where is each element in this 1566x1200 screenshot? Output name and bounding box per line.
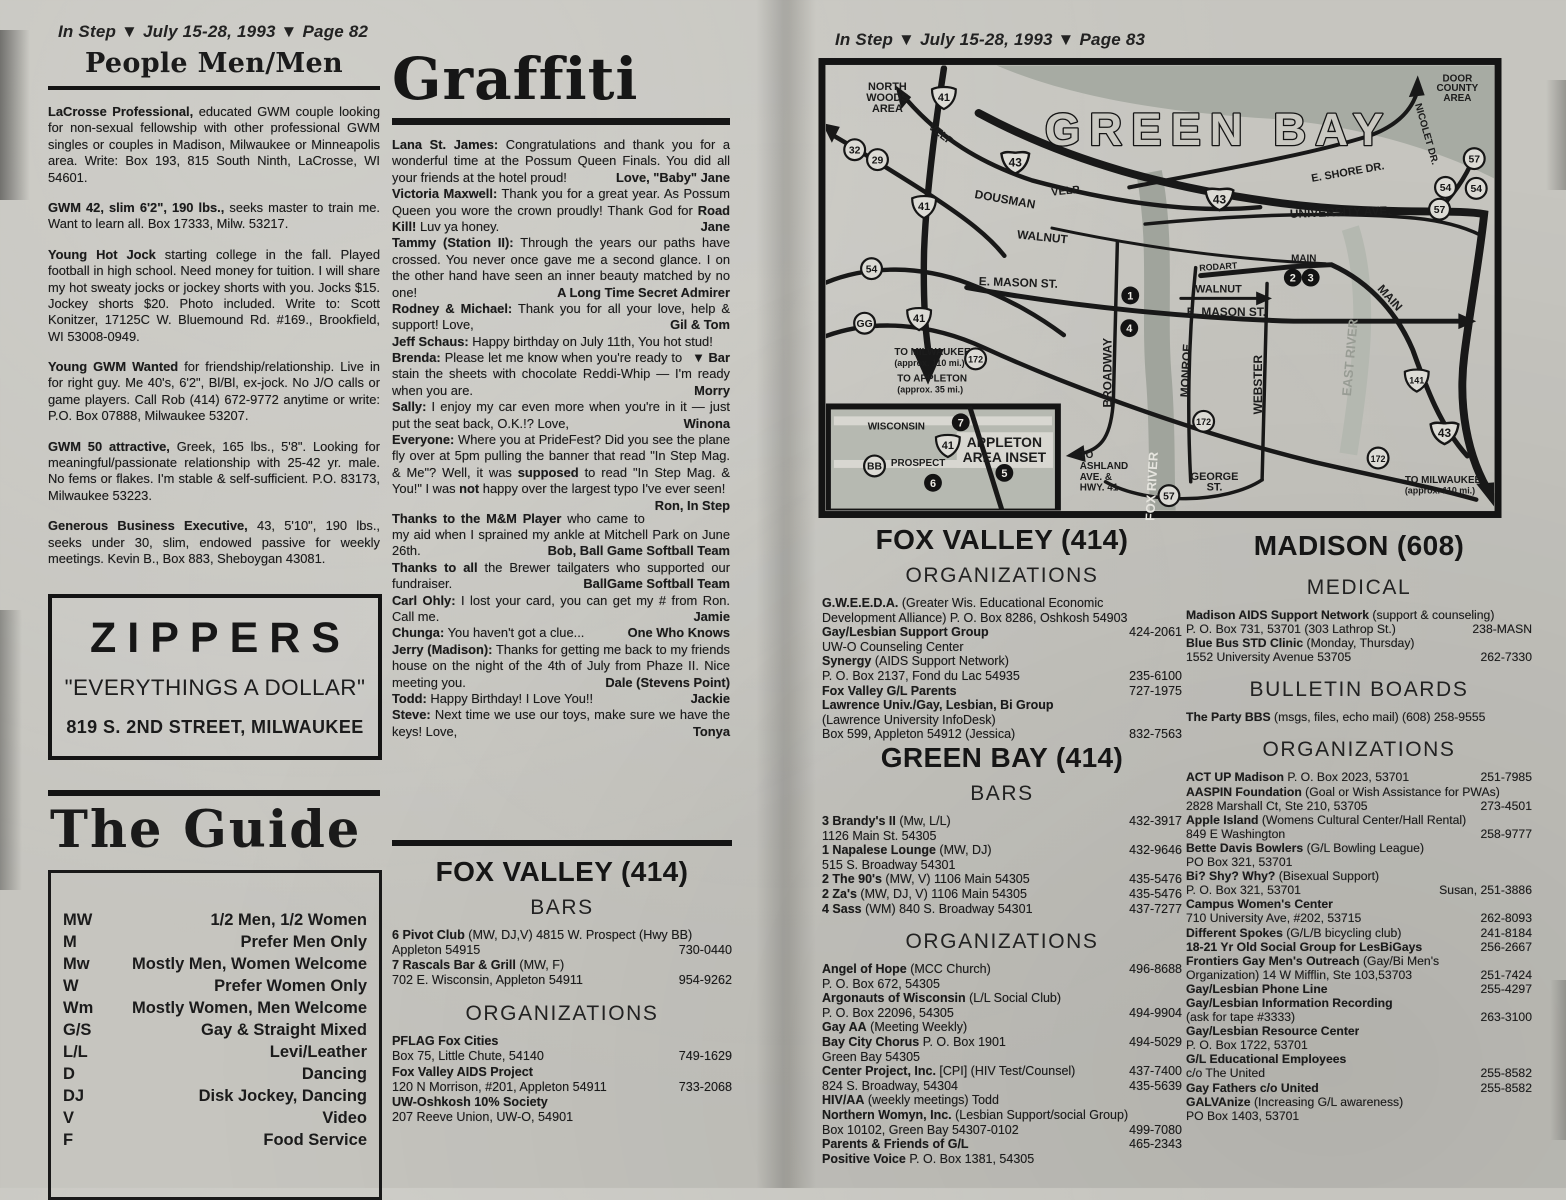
listing-text: 710 University Ave, #202, 53715 bbox=[1186, 911, 1361, 925]
graffiti-entry: Sally: I enjoy my car even more when you… bbox=[392, 399, 730, 432]
marker-number: 2 bbox=[1290, 273, 1296, 285]
listing-line: Fox Valley AIDS Project bbox=[392, 1065, 732, 1080]
graffiti-signature: Dale (Stevens Point) bbox=[595, 675, 730, 691]
shield-number: 41 bbox=[938, 92, 950, 104]
green-bay-bars-list: 3 Brandy's II (Mw, L/L)432-39171126 Main… bbox=[822, 814, 1182, 916]
listing-text: PO Box 1403, 53701 bbox=[1186, 1109, 1299, 1123]
listing-name: AASPIN Foundation bbox=[1186, 785, 1302, 799]
graffiti-signature: ▼ Bar bbox=[682, 350, 730, 366]
road-walnut-upper bbox=[1052, 228, 1326, 264]
listing-line: 18-21 Yr Old Social Group for LesBiGays2… bbox=[1186, 940, 1532, 954]
organizations-subheading: ORGANIZATIONS bbox=[1186, 738, 1532, 762]
map-label: MONROE bbox=[1177, 343, 1194, 397]
marker-number: 4 bbox=[1126, 323, 1132, 335]
listing-name: Madison AIDS Support Network bbox=[1186, 608, 1369, 622]
listing-phone: 733-2068 bbox=[607, 1080, 732, 1095]
listing-text: Bi? Shy? Why? (Bisexual Support) bbox=[1186, 869, 1379, 883]
legend-row: WPrefer Women Only bbox=[63, 975, 367, 997]
listing-name: Campus Women's Center bbox=[1186, 897, 1333, 911]
listing-text: Bette Davis Bowlers (G/L Bowling League) bbox=[1186, 841, 1424, 855]
bar-location-marker: 1 bbox=[1121, 287, 1139, 305]
route-number: 54 bbox=[1470, 184, 1482, 195]
shield-number: 41 bbox=[918, 201, 930, 213]
zippers-ad-tagline: "EVERYTHINGS A DOLLAR" bbox=[56, 675, 374, 701]
graffiti-bold-text: Sally: bbox=[392, 399, 426, 414]
listing-text: Northern Womyn, Inc. (Lesbian Support/so… bbox=[822, 1108, 1128, 1123]
legend-description: Gay & Straight Mixed bbox=[127, 1019, 367, 1041]
listing-text: 515 S. Broadway 54301 bbox=[822, 858, 955, 873]
listing-text: 824 S. Broadway, 54304 bbox=[822, 1079, 958, 1094]
legend-description: Mostly Men, Women Welcome bbox=[127, 953, 367, 975]
legend-row: MW1/2 Men, 1/2 Women bbox=[63, 909, 367, 931]
listing-line: HIV/AA (weekly meetings) Todd bbox=[822, 1093, 1182, 1108]
legend-code: DJ bbox=[63, 1085, 127, 1107]
listing-text: Gay AA (Meeting Weekly) bbox=[822, 1020, 967, 1035]
listing-line: 2828 Marshall Ct, Ste 210, 53705273-4501 bbox=[1186, 799, 1532, 813]
listing-line: 1552 University Avenue 53705262-7330 bbox=[1186, 650, 1532, 664]
listing-name: G/L Educational Employees bbox=[1186, 1052, 1346, 1066]
listing-name: Synergy bbox=[822, 654, 871, 668]
listing-line: Appleton 54915730-0440 bbox=[392, 943, 732, 958]
route-number: GG bbox=[857, 319, 873, 330]
graffiti-signature: Jackie bbox=[681, 691, 730, 707]
divider-rule bbox=[392, 840, 732, 846]
legend-code: Wm bbox=[63, 997, 127, 1019]
graffiti-entry: Victoria Maxwell: Thank you for a great … bbox=[392, 186, 730, 235]
listing-line: (Lawrence University InfoDesk) bbox=[822, 713, 1182, 728]
legend-description: Levi/Leather bbox=[127, 1041, 367, 1063]
listing-text: 1126 Main St. 54305 bbox=[822, 829, 936, 844]
listing-line: 7 Rascals Bar & Grill (MW, F) bbox=[392, 958, 732, 973]
listing-text: Synergy (AIDS Support Network) bbox=[822, 654, 1009, 669]
listing-line: Different Spokes (G/L/B bicycling club)2… bbox=[1186, 926, 1532, 940]
map-label: VELP bbox=[1051, 184, 1081, 199]
scan-smudge bbox=[1550, 980, 1566, 1140]
listing-phone: 435-5476 bbox=[1027, 887, 1182, 902]
listing-line: Gay AA (Meeting Weekly) bbox=[822, 1020, 1182, 1035]
listing-line: Gay/Lesbian Information Recording bbox=[1186, 996, 1532, 1010]
listing-text: 2828 Marshall Ct, Ste 210, 53705 bbox=[1186, 799, 1368, 813]
map-title: GREEN BAY bbox=[1045, 104, 1392, 155]
listing-line: P. O. Box 2137, Fond du Lac 54935235-610… bbox=[822, 669, 1182, 684]
legend-code: Mw bbox=[63, 953, 127, 975]
listing-text: The Party BBS (msgs, files, echo mail) (… bbox=[1186, 710, 1485, 724]
graffiti-bold-text: Thanks to the M&M Player bbox=[392, 511, 561, 526]
listing-phone: 496-8688 bbox=[991, 962, 1182, 977]
listing-text: P. O. Box 2137, Fond du Lac 54935 bbox=[822, 669, 1020, 684]
listing-line: (ask for tape #3333)263-3100 bbox=[1186, 1010, 1532, 1024]
listing-phone: 263-3100 bbox=[1295, 1010, 1532, 1024]
legend-description: 1/2 Men, 1/2 Women bbox=[127, 909, 367, 931]
map-label: TO MILWAUKEE bbox=[1405, 475, 1482, 486]
classified-ad: Young GWM Wanted for friendship/relation… bbox=[48, 359, 380, 425]
fox-valley-guide-left: FOX VALLEY (414) BARS 6 Pivot Club (MW, … bbox=[392, 840, 732, 1125]
listing-name: Different Spokes bbox=[1186, 926, 1283, 940]
graffiti-entry: Steve: Next time we use our toys, make s… bbox=[392, 707, 730, 740]
shield-number: 43 bbox=[1213, 192, 1227, 206]
map-label: WISCONSIN bbox=[868, 421, 925, 432]
listing-line: Box 75, Little Chute, 54140749-1629 bbox=[392, 1049, 732, 1064]
listing-phone: 256-2667 bbox=[1422, 940, 1532, 954]
route-number: 32 bbox=[849, 145, 861, 156]
listing-phone: 435-5476 bbox=[1030, 872, 1182, 887]
listing-text: Fox Valley AIDS Project bbox=[392, 1065, 533, 1080]
listing-line: Bay City Chorus P. O. Box 1901494-5029 bbox=[822, 1035, 1182, 1050]
listing-text: Positive Voice P. O. Box 1381, 54305 bbox=[822, 1152, 1034, 1167]
madison-medical-list: Madison AIDS Support Network (support & … bbox=[1186, 608, 1532, 664]
listing-name: Fox Valley G/L Parents bbox=[822, 684, 957, 698]
listing-line: PFLAG Fox Cities bbox=[392, 1034, 732, 1049]
listing-line: GALVAnize (Increasing G/L awareness) bbox=[1186, 1095, 1532, 1109]
listing-text: 6 Pivot Club (MW, DJ,V) 4815 W. Prospect… bbox=[392, 928, 692, 943]
graffiti-signature: Jamie bbox=[683, 609, 730, 625]
listing-name: Gay/Lesbian Information Recording bbox=[1186, 996, 1393, 1010]
listing-name: Positive Voice bbox=[822, 1152, 906, 1166]
classified-ad: GWM 50 attractive, Greek, 165 lbs., 5'8"… bbox=[48, 439, 380, 505]
route-number: 172 bbox=[968, 355, 983, 365]
listing-line: G.W.E.E.D.A. (Greater Wis. Educational E… bbox=[822, 596, 1182, 611]
map-label: AREA bbox=[1443, 93, 1471, 104]
listing-name: Lawrence Univ./Gay, Lesbian, Bi Group bbox=[822, 698, 1054, 712]
listing-line: Synergy (AIDS Support Network) bbox=[822, 654, 1182, 669]
county-route-circle: 32 bbox=[844, 139, 865, 160]
listing-line: 849 E Washington258-9777 bbox=[1186, 827, 1532, 841]
listing-text: 18-21 Yr Old Social Group for LesBiGays bbox=[1186, 940, 1422, 954]
bar-location-marker: 7 bbox=[952, 413, 970, 431]
route-number: BB bbox=[867, 462, 883, 473]
listing-phone: 238-MASN bbox=[1396, 622, 1532, 636]
bar-location-marker: 6 bbox=[924, 474, 942, 492]
graffiti-entry: Everyone: Where you at PrideFest? Did yo… bbox=[392, 432, 730, 498]
classified-lead: LaCrosse Professional, bbox=[48, 104, 193, 119]
listing-line: Bi? Shy? Why? (Bisexual Support) bbox=[1186, 869, 1532, 883]
listing-phone: 255-8582 bbox=[1265, 1066, 1532, 1080]
listing-line: The Party BBS (msgs, files, echo mail) (… bbox=[1186, 710, 1532, 724]
listing-name: Gay AA bbox=[822, 1020, 867, 1034]
listing-text: (ask for tape #3333) bbox=[1186, 1010, 1295, 1024]
listing-text: Angel of Hope (MCC Church) bbox=[822, 962, 991, 977]
listing-text: 4 Sass (WM) 840 S. Broadway 54301 bbox=[822, 902, 1033, 917]
listing-line: P. O. Box 731, 53701 (303 Lathrop St.)23… bbox=[1186, 622, 1532, 636]
listing-name: 1 Napalese Lounge bbox=[822, 843, 936, 857]
listing-name: 6 Pivot Club bbox=[392, 928, 465, 942]
listing-name: Angel of Hope bbox=[822, 962, 907, 976]
graffiti-bold-text: supposed bbox=[518, 465, 579, 480]
listing-phone: 432-9646 bbox=[991, 843, 1182, 858]
graffiti-bold-text: Tammy (Station II): bbox=[392, 235, 514, 250]
listing-text: UW-O Counseling Center bbox=[822, 640, 964, 655]
graffiti-entry: Lana St. James: Congratulations and than… bbox=[392, 137, 730, 186]
zippers-ad-name: ZIPPERS bbox=[56, 614, 374, 663]
legend-code: D bbox=[63, 1063, 127, 1085]
listing-name: Argonauts of Wisconsin bbox=[822, 991, 966, 1005]
graffiti-bold-text: Thanks to all bbox=[392, 560, 478, 575]
listing-text: Green Bay 54305 bbox=[822, 1050, 920, 1065]
listing-name: GALVAnize bbox=[1186, 1095, 1251, 1109]
legend-description: Food Service bbox=[127, 1129, 367, 1151]
listing-name: PFLAG Fox Cities bbox=[392, 1034, 498, 1048]
legend-code: L/L bbox=[63, 1041, 127, 1063]
bulletin-boards-subheading: BULLETIN BOARDS bbox=[1186, 678, 1532, 702]
map-label: APPLETON bbox=[967, 434, 1042, 450]
classified-lead: GWM 50 attractive, bbox=[48, 439, 170, 454]
route-number: 57 bbox=[1163, 491, 1175, 502]
listing-name: 7 Rascals Bar & Grill bbox=[392, 958, 516, 972]
listing-phone: 730-0440 bbox=[480, 943, 732, 958]
listing-phone: 241-8184 bbox=[1401, 926, 1532, 940]
marker-number: 1 bbox=[1127, 290, 1133, 302]
classified-ad: LaCrosse Professional, educated GWM coup… bbox=[48, 104, 380, 186]
bar-location-marker: 3 bbox=[1302, 269, 1320, 287]
legend-code: F bbox=[63, 1129, 127, 1151]
fox-valley-heading: FOX VALLEY (414) bbox=[822, 524, 1182, 556]
graffiti-signature: Morry bbox=[684, 383, 730, 399]
listing-name: Apple Island bbox=[1186, 813, 1258, 827]
fox-valley-heading: FOX VALLEY (414) bbox=[392, 856, 732, 888]
listing-line: Madison AIDS Support Network (support & … bbox=[1186, 608, 1532, 622]
listing-name: Blue Bus STD Clinic bbox=[1186, 636, 1303, 650]
classified-ads-list: LaCrosse Professional, educated GWM coup… bbox=[48, 104, 380, 598]
inset-road-wisconsin bbox=[834, 416, 1052, 425]
listing-name: Gay Fathers c/o United bbox=[1186, 1081, 1319, 1095]
listing-line: 3 Brandy's II (Mw, L/L)432-3917 bbox=[822, 814, 1182, 829]
listing-text: P. O. Box 321, 53701 bbox=[1186, 883, 1301, 897]
listing-line: 2 The 90's (MW, V) 1106 Main 54305435-54… bbox=[822, 872, 1182, 887]
scan-smudge bbox=[0, 30, 30, 200]
legend-row: DDancing bbox=[63, 1063, 367, 1085]
listing-line: P. O. Box 321, 53701Susan, 251-3886 bbox=[1186, 883, 1532, 897]
marker-number: 5 bbox=[1001, 468, 1007, 480]
listing-text: (Lawrence University InfoDesk) bbox=[822, 713, 996, 728]
the-guide-title: The Guide bbox=[50, 800, 361, 860]
legend-row: G/SGay & Straight Mixed bbox=[63, 1019, 367, 1041]
left-page-column-2: Graffiti Lana St. James: Congratulations… bbox=[392, 50, 730, 740]
arrow-walnut bbox=[1256, 291, 1272, 305]
listing-line: AASPIN Foundation (Goal or Wish Assistan… bbox=[1186, 785, 1532, 799]
organizations-subheading: ORGANIZATIONS bbox=[822, 564, 1182, 588]
divider-rule bbox=[392, 118, 730, 125]
graffiti-bold-text: Steve: bbox=[392, 707, 431, 722]
map-label: TO MILWAUKEE bbox=[894, 347, 971, 358]
listing-text: Box 75, Little Chute, 54140 bbox=[392, 1049, 544, 1064]
madison-heading: MADISON (608) bbox=[1186, 530, 1532, 562]
listing-line: Bette Davis Bowlers (G/L Bowling League) bbox=[1186, 841, 1532, 855]
graffiti-entries: Lana St. James: Congratulations and than… bbox=[392, 137, 730, 740]
county-route-circle: 172 bbox=[1193, 411, 1214, 432]
shield-number: 43 bbox=[1438, 426, 1452, 440]
listing-text: c/o The United bbox=[1186, 1066, 1265, 1080]
listing-phone: 255-4297 bbox=[1328, 982, 1532, 996]
listing-text: 3 Brandy's II (Mw, L/L) bbox=[822, 814, 951, 829]
listing-line: 515 S. Broadway 54301 bbox=[822, 858, 1182, 873]
scan-smudge bbox=[1546, 80, 1566, 190]
fox-valley-orgs-list: G.W.E.E.D.A. (Greater Wis. Educational E… bbox=[822, 596, 1182, 742]
marker-number: 7 bbox=[958, 417, 964, 429]
listing-text: Gay/Lesbian Phone Line bbox=[1186, 982, 1328, 996]
green-bay-map-svg: GREEN BAYNORTHWOODSAREADOORCOUNTYAREAVEL… bbox=[818, 56, 1502, 520]
listing-text: 120 N Morrison, #201, Appleton 54911 bbox=[392, 1080, 607, 1095]
listing-text: Apple Island (Womens Cultural Center/Hal… bbox=[1186, 813, 1466, 827]
zippers-ad-address: 819 S. 2ND STREET, MILWAUKEE bbox=[56, 717, 374, 738]
county-route-circle: 57 bbox=[1464, 148, 1485, 169]
listing-line: Box 599, Appleton 54912 (Jessica)832-756… bbox=[822, 727, 1182, 742]
listing-line: 702 E. Wisconsin, Appleton 54911954-9262 bbox=[392, 973, 732, 988]
listing-line: Campus Women's Center bbox=[1186, 897, 1532, 911]
bar-location-marker: 2 bbox=[1284, 269, 1302, 287]
listing-phone: 727-1975 bbox=[957, 684, 1182, 699]
listing-text: Development Alliance) P. O. Box 8286, Os… bbox=[822, 611, 1128, 626]
map-label: ASHLAND bbox=[1080, 461, 1128, 472]
listing-text: PFLAG Fox Cities bbox=[392, 1034, 498, 1049]
listing-line: PO Box 1403, 53701 bbox=[1186, 1109, 1532, 1123]
green-bay-orgs-list: Angel of Hope (MCC Church)496-8688P. O. … bbox=[822, 962, 1182, 1166]
graffiti-entry: Carl Ohly: I lost your card, you can get… bbox=[392, 593, 730, 626]
county-route-circle: 172 bbox=[965, 348, 986, 369]
graffiti-bold-text: Jerry (Madison): bbox=[392, 642, 492, 657]
bars-subheading: BARS bbox=[392, 896, 732, 920]
listing-name: Northern Womyn, Inc. bbox=[822, 1108, 952, 1122]
listing-name: The Party BBS bbox=[1186, 710, 1271, 724]
listing-text: Box 599, Appleton 54912 (Jessica) bbox=[822, 727, 1015, 742]
marker-number: 6 bbox=[930, 478, 936, 490]
people-men-men-title: People Men/Men bbox=[48, 48, 380, 90]
listing-name: Frontiers Gay Men's Outreach bbox=[1186, 954, 1360, 968]
legend-row: MPrefer Men Only bbox=[63, 931, 367, 953]
listing-line: Frontiers Gay Men's Outreach (Gay/Bi Men… bbox=[1186, 954, 1532, 968]
listing-phone: 465-2343 bbox=[969, 1137, 1182, 1152]
graffiti-bold-text: Lana St. James: bbox=[392, 137, 498, 152]
legend-code: M bbox=[63, 931, 127, 953]
listing-text: UW-Oshkosh 10% Society bbox=[392, 1095, 548, 1110]
graffiti-signature: Bob, Ball Game Softball Team bbox=[538, 543, 730, 559]
graffiti-signature: One Who Knows bbox=[618, 625, 730, 641]
listing-text: 2 Za's (MW, DJ, V) 1106 Main 54305 bbox=[822, 887, 1027, 902]
county-route-circle: 172 bbox=[1368, 448, 1389, 469]
green-bay-heading: GREEN BAY (414) bbox=[822, 742, 1182, 774]
listing-name: 3 Brandy's II bbox=[822, 814, 896, 828]
listing-text: P. O. Box 672, 54305 bbox=[822, 977, 940, 992]
listing-name: Bay City Chorus bbox=[822, 1035, 919, 1049]
shield-number: 41 bbox=[942, 440, 954, 452]
listing-text: 1552 University Avenue 53705 bbox=[1186, 650, 1351, 664]
listing-phone: 251-7985 bbox=[1409, 770, 1532, 784]
graffiti-entry: Todd: Happy Birthday! I Love You!!Jackie bbox=[392, 691, 730, 707]
graffiti-bold-text: Everyone: bbox=[392, 432, 454, 447]
listing-text: Bay City Chorus P. O. Box 1901 bbox=[822, 1035, 1006, 1050]
listing-line: Organization) 14 W Mifflin, Ste 103,5370… bbox=[1186, 968, 1532, 982]
madison-orgs-list: ACT UP Madison P. O. Box 2023, 53701251-… bbox=[1186, 770, 1532, 1122]
classified-lead: Young GWM Wanted bbox=[48, 359, 178, 374]
legend-row: FFood Service bbox=[63, 1129, 367, 1151]
legend-description: Disk Jockey, Dancing bbox=[127, 1085, 367, 1107]
graffiti-signature: Jane bbox=[691, 219, 730, 235]
map-label: AVE. & bbox=[1080, 472, 1112, 483]
shield-number: 141 bbox=[1409, 376, 1424, 386]
listing-line: G/L Educational Employees bbox=[1186, 1052, 1532, 1066]
listing-line: P. O. Box 1722, 53701 bbox=[1186, 1038, 1532, 1052]
classified-ad: Generous Business Executive, 43, 5'10", … bbox=[48, 518, 380, 567]
listing-phone: 749-1629 bbox=[544, 1049, 732, 1064]
listing-phone: 235-6100 bbox=[1020, 669, 1182, 684]
legend-row: VVideo bbox=[63, 1107, 367, 1129]
listing-line: Blue Bus STD Clinic (Monday, Thursday) bbox=[1186, 636, 1532, 650]
right-page-column-1: FOX VALLEY (414) ORGANIZATIONS G.W.E.E.D… bbox=[822, 524, 1182, 1166]
county-route-circle: BB bbox=[864, 456, 885, 477]
listing-line: Northern Womyn, Inc. (Lesbian Support/so… bbox=[822, 1108, 1182, 1123]
listing-line: 710 University Ave, #202, 53715262-8093 bbox=[1186, 911, 1532, 925]
listing-phone: 494-5029 bbox=[1006, 1035, 1182, 1050]
medical-subheading: MEDICAL bbox=[1186, 576, 1532, 600]
route-number: 172 bbox=[1196, 417, 1211, 427]
listing-text: Parents & Friends of G/L bbox=[822, 1137, 969, 1152]
listing-line: 4 Sass (WM) 840 S. Broadway 54301437-727… bbox=[822, 902, 1182, 917]
listing-line: 2 Za's (MW, DJ, V) 1106 Main 54305435-54… bbox=[822, 887, 1182, 902]
classified-ad: Young Hot Jock starting college in the f… bbox=[48, 247, 380, 345]
graffiti-entry: Chunga: You haven't got a clue...One Who… bbox=[392, 625, 730, 641]
listing-text: 702 E. Wisconsin, Appleton 54911 bbox=[392, 973, 583, 988]
listing-name: HIV/AA bbox=[822, 1093, 864, 1107]
county-route-circle: 54 bbox=[861, 258, 882, 279]
listing-text: Gay/Lesbian Information Recording bbox=[1186, 996, 1393, 1010]
listing-line: Lawrence Univ./Gay, Lesbian, Bi Group bbox=[822, 698, 1182, 713]
listing-text: 849 E Washington bbox=[1186, 827, 1285, 841]
legend-row: L/LLevi/Leather bbox=[63, 1041, 367, 1063]
map-label: TO APPLETON bbox=[897, 374, 967, 385]
listing-text: Box 10102, Green Bay 54307-0102 bbox=[822, 1123, 1019, 1138]
us-route-shield: 41 bbox=[912, 196, 936, 218]
organizations-subheading: ORGANIZATIONS bbox=[822, 930, 1182, 954]
county-route-circle: 54 bbox=[1435, 177, 1456, 198]
graffiti-entry: Rodney & Michael: Thank you for all your… bbox=[392, 301, 730, 334]
listing-line: Gay/Lesbian Phone Line255-4297 bbox=[1186, 982, 1532, 996]
listing-line: Argonauts of Wisconsin (L/L Social Club) bbox=[822, 991, 1182, 1006]
map-label: UNIVERSITY AVE. bbox=[1290, 203, 1391, 221]
listing-line: Positive Voice P. O. Box 1381, 54305 bbox=[822, 1152, 1182, 1167]
listing-phone: 832-7563 bbox=[1015, 727, 1182, 742]
classified-lead: Young Hot Jock bbox=[48, 247, 156, 262]
listing-text: PO Box 321, 53701 bbox=[1186, 855, 1292, 869]
route-number: 54 bbox=[866, 264, 878, 275]
listing-text: ACT UP Madison P. O. Box 2023, 53701 bbox=[1186, 770, 1409, 784]
listing-line: 824 S. Broadway, 54304435-5639 bbox=[822, 1079, 1182, 1094]
county-route-circle: GG bbox=[854, 313, 875, 334]
graffiti-bold-text: Rodney & Michael: bbox=[392, 301, 512, 316]
listing-line: Development Alliance) P. O. Box 8286, Os… bbox=[822, 611, 1182, 626]
graffiti-bold-text: Brenda: bbox=[392, 350, 441, 365]
listing-name: Center Project, Inc. bbox=[822, 1064, 936, 1078]
fox-valley-bars-list: 6 Pivot Club (MW, DJ,V) 4815 W. Prospect… bbox=[392, 928, 732, 988]
listing-line: c/o The United255-8582 bbox=[1186, 1066, 1532, 1080]
classified-lead: Generous Business Executive, bbox=[48, 518, 248, 533]
listing-line: Parents & Friends of G/L465-2343 bbox=[822, 1137, 1182, 1152]
listing-text: Organization) 14 W Mifflin, Ste 103,5370… bbox=[1186, 968, 1412, 982]
listing-name: 4 Sass bbox=[822, 902, 862, 916]
legend-code: V bbox=[63, 1107, 127, 1129]
page-fold bbox=[756, 0, 816, 1188]
listing-name: 2 The 90's bbox=[822, 872, 882, 886]
listing-name: UW-Oshkosh 10% Society bbox=[392, 1095, 548, 1109]
map-label: (approx. 110 mi.) bbox=[1405, 486, 1475, 496]
listing-name: Parents & Friends of G/L bbox=[822, 1137, 969, 1151]
listing-name: Bette Davis Bowlers bbox=[1186, 841, 1303, 855]
graffiti-entry: Thanks to the M&M Player who came to my … bbox=[392, 511, 730, 560]
listing-line: 120 N Morrison, #201, Appleton 54911733-… bbox=[392, 1080, 732, 1095]
map-label: AREA bbox=[872, 103, 903, 115]
listing-name: Bi? Shy? Why? bbox=[1186, 869, 1275, 883]
magazine-scan: { "left_page": { "header": "In Step ▼ Ju… bbox=[0, 0, 1566, 1188]
listing-line: Fox Valley G/L Parents727-1975 bbox=[822, 684, 1182, 699]
map-label: HWY. 41 bbox=[1080, 483, 1119, 494]
